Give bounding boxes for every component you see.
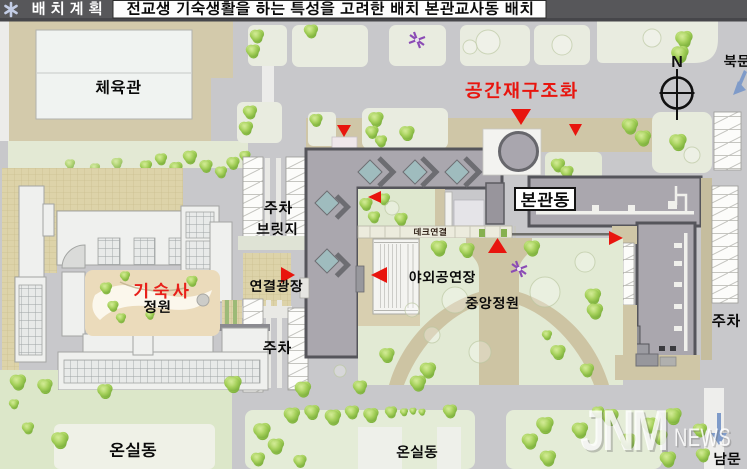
svg-text:JNM: JNM bbox=[580, 398, 667, 462]
svg-text:N: N bbox=[671, 54, 683, 71]
svg-text:NEWS: NEWS bbox=[674, 423, 731, 451]
